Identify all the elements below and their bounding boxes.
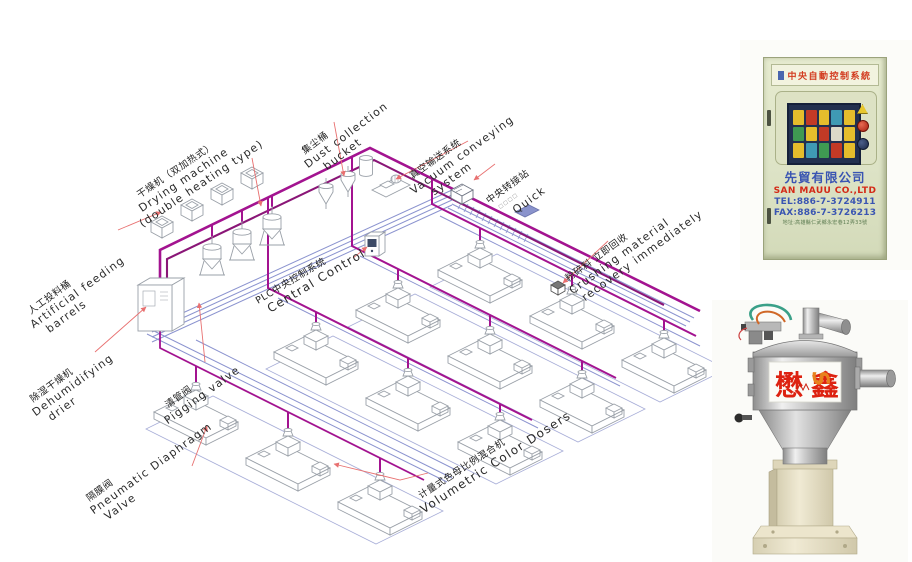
label-diaphragm: 隔膜阀 Pneumatic Diaphragm Valve: [81, 410, 223, 527]
company-address: 地址:高雄縣仁武鄉永宏巷12弄33號: [764, 220, 886, 226]
cabinet-screen-panel: [775, 91, 877, 165]
control-cabinet: 中央自動控制系統 先貿有限公司 SAN MAUU CO.,LTD TEL:886…: [763, 57, 887, 260]
label-feeding: 人工投料桶 Artificial feeding barrels: [21, 244, 135, 341]
pilot-light-blue: [857, 138, 869, 150]
label-plc: PLC中央控制系统 Central Control: [253, 236, 367, 319]
label-transfer: 中央转接站 □□□□ Quick: [484, 165, 549, 226]
toggle-clamp: [748, 358, 754, 372]
system-diagram: 人工投料桶 Artificial feeding barrels 干燥机（双加热…: [0, 0, 740, 562]
drying-hopper: [259, 206, 285, 245]
toggle-clamp: [748, 384, 754, 396]
molding-machine: [438, 240, 522, 303]
molding-machine: [622, 330, 706, 393]
label-dust: 集尘桶 Dust collection bucket: [295, 90, 399, 181]
vacuum-pump-station: [372, 175, 410, 197]
hopper-loader-photo: 懋 鑫 S: [712, 300, 908, 562]
control-cabinet-photo: 中央自動控制系統 先貿有限公司 SAN MAUU CO.,LTD TEL:886…: [740, 40, 912, 270]
hopper-lid: [753, 341, 857, 358]
solenoid-valve: [741, 322, 781, 344]
brand-label: 懋 鑫 S: [769, 362, 841, 402]
vacuum-return-lines: [147, 190, 700, 482]
molding-machine: [338, 472, 422, 535]
hopper-loader: 懋 鑫 S: [712, 300, 908, 562]
cabinet-handle-slot: [767, 208, 771, 224]
label-crushing-en1: Crushing material: [567, 216, 672, 297]
base-stand: [753, 460, 857, 554]
elbow-outlet-pipe: [819, 313, 851, 335]
company-tel: TEL:886-7-3724911: [764, 197, 886, 208]
company-fax: FAX:886-7-3726213: [764, 208, 886, 219]
plc-control-panel: [365, 232, 385, 256]
cabinet-sign: 中央自動控制系統: [771, 64, 879, 86]
label-dehumid: 除湿干燥机 Dehumidifying drier: [23, 342, 124, 430]
hopper-cone: [759, 410, 851, 450]
cabinet-indicators: [855, 102, 869, 154]
label-feeding-en1: Artificial feeding: [28, 254, 128, 331]
label-diaphragm-en1: Pneumatic Diaphragm: [88, 420, 215, 517]
cyclone-separator: [319, 178, 333, 209]
knob-stem: [742, 415, 752, 420]
cone-outlet: [783, 448, 827, 464]
screenshot-root: 人工投料桶 Artificial feeding barrels 干燥机（双加热…: [0, 0, 912, 562]
side-outlet-pipe: [855, 367, 896, 389]
molding-machine: [246, 428, 330, 491]
cabinet-text-block: 先貿有限公司 SAN MAUU CO.,LTD TEL:886-7-372491…: [764, 170, 886, 227]
cabinet-handle-slot: [767, 110, 771, 126]
crusher-unit: [551, 281, 565, 295]
dehumidifying-dryer: [138, 278, 184, 331]
cabinet-sign-logo-icon: [778, 71, 784, 80]
feeding-barrel: [241, 167, 263, 189]
molding-machine: [530, 286, 614, 349]
company-name-zh: 先貿有限公司: [764, 170, 886, 186]
cabinet-sign-text: 中央自動控制系統: [787, 69, 871, 82]
inlet-pipe: [803, 308, 819, 336]
company-name-en: SAN MAUU CO.,LTD: [764, 186, 886, 197]
pilot-light-red: [857, 120, 869, 132]
pilot-light-yellow: [857, 104, 868, 114]
feeding-barrel: [211, 183, 233, 205]
inlet-flange: [799, 334, 823, 339]
dust-collection-bucket: [360, 156, 373, 177]
hmi-touchscreen: [787, 103, 861, 165]
